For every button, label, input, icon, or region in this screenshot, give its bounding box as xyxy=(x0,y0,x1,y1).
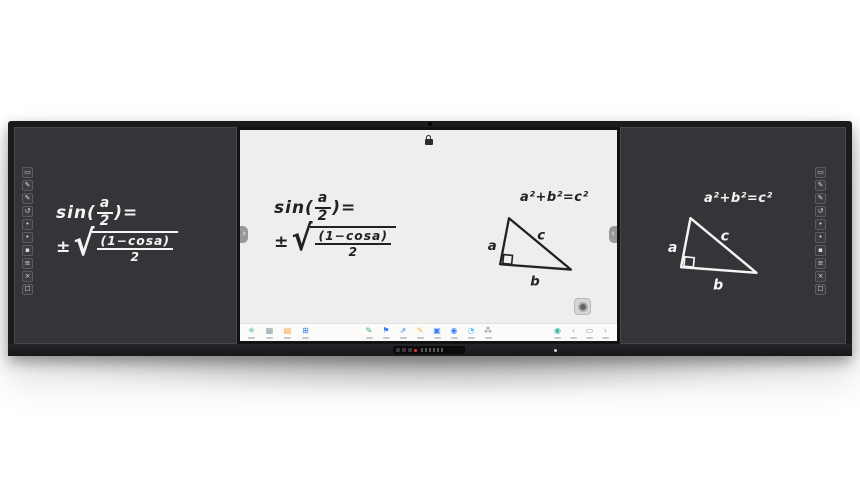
icon-label xyxy=(400,337,407,339)
eraser-puck[interactable] xyxy=(574,298,591,315)
marker-icon[interactable]: ✎ xyxy=(22,193,33,204)
back-glyph: ‹ xyxy=(572,326,575,335)
eraser-icon[interactable]: ▪ xyxy=(815,245,826,256)
eraser-icon[interactable]: ▪ xyxy=(22,245,33,256)
radicand-denominator: 2 xyxy=(348,245,358,258)
right-expand-tab[interactable]: ‹ xyxy=(609,226,617,243)
icon-label xyxy=(284,337,291,339)
left-side-toolbar: ▭ ✎ ✎ ↺ • • ▪ ≡ × ☐ xyxy=(22,167,33,295)
icon-label xyxy=(366,337,373,339)
icon-label xyxy=(383,337,390,339)
power-led xyxy=(414,349,417,352)
radical-sign: √ xyxy=(73,230,95,259)
tools-glyph: ◉ xyxy=(451,326,458,335)
shape-icon[interactable]: • xyxy=(815,219,826,230)
apps-grid-icon[interactable]: ▦ xyxy=(264,326,275,339)
history-icon[interactable]: ↺ xyxy=(815,206,826,217)
fraction-denominator: 2 xyxy=(100,214,111,229)
triangle-label-b: b xyxy=(530,275,540,290)
taskbar-left-group: ✳ ▦ ▤ ⊞ xyxy=(246,326,311,339)
half-angle-formula-chalk: sin(a2)= ± √(1−cosa)2 xyxy=(56,197,178,263)
apps-grid-glyph: ▦ xyxy=(266,326,274,335)
select-icon[interactable]: ☐ xyxy=(22,284,33,295)
icon-label xyxy=(586,337,593,339)
annotate-glyph: ✎ xyxy=(366,326,373,335)
layers-icon[interactable]: ≡ xyxy=(22,258,33,269)
radicand-denominator: 2 xyxy=(130,250,140,263)
courseware-icon[interactable]: ⚑ xyxy=(381,326,392,339)
clear-icon[interactable]: × xyxy=(22,271,33,282)
center-display: › ‹ sin(a2)= ± √(1−cosa)2 a²+b²=c² a xyxy=(240,130,617,341)
taskbar-center-group: ✎ ⚑ ⇗ ✎ ▣ ◉ ◔ ⁂ xyxy=(364,326,494,339)
display-icon[interactable]: ▣ xyxy=(432,326,443,339)
icon-label xyxy=(434,337,441,339)
right-blackboard-panel: a²+b²=c² a c b ▭ ✎ ✎ ↺ • • ▪ ≡ × ☐ xyxy=(620,127,846,344)
panel-button[interactable] xyxy=(408,348,412,352)
history-icon[interactable]: ↺ xyxy=(22,206,33,217)
select-icon[interactable]: ☐ xyxy=(815,284,826,295)
formula-text: )= xyxy=(332,198,356,218)
left-expand-tab[interactable]: › xyxy=(240,226,248,243)
left-blackboard-panel: ▭ ✎ ✎ ↺ • • ▪ ≡ × ☐ sin(a2)= ± √(1−cosa)… xyxy=(14,127,237,344)
plus-minus-sign: ± xyxy=(56,237,71,257)
courseware-glyph: ⚑ xyxy=(382,326,389,335)
icon-label xyxy=(248,337,255,339)
radicand-numerator: (1−cosa) xyxy=(315,230,390,245)
forward-icon[interactable]: › xyxy=(600,326,611,339)
home-icon[interactable]: ▭ xyxy=(584,326,595,339)
panel-button[interactable] xyxy=(402,348,406,352)
triangle-label-a: a xyxy=(488,239,497,254)
icon-label xyxy=(468,337,475,339)
shape-icon[interactable]: • xyxy=(22,219,33,230)
windows-glyph: ⊞ xyxy=(302,326,309,335)
icon-label xyxy=(266,337,273,339)
triangle-label-c: c xyxy=(537,229,545,244)
annotate-icon[interactable]: ✎ xyxy=(364,326,375,339)
highlighter-glyph: ✎ xyxy=(417,326,424,335)
pen-icon[interactable]: ✎ xyxy=(22,180,33,191)
smart-blackboard-device: ▭ ✎ ✎ ↺ • • ▪ ≡ × ☐ sin(a2)= ± √(1−cosa)… xyxy=(8,121,852,356)
mindmap-icon[interactable]: ⁂ xyxy=(483,326,494,339)
icon-label xyxy=(554,337,561,339)
icon-label xyxy=(570,337,577,339)
timer-icon[interactable]: ◔ xyxy=(466,326,477,339)
icon-label xyxy=(451,337,458,339)
icon-label xyxy=(417,337,424,339)
icon-label xyxy=(602,337,609,339)
share-screen-glyph: ⇗ xyxy=(400,326,407,335)
board-icon[interactable]: ▭ xyxy=(22,167,33,178)
board-icon[interactable]: ▭ xyxy=(815,167,826,178)
formula-text: )= xyxy=(114,203,138,223)
share-screen-icon[interactable]: ⇗ xyxy=(398,326,409,339)
display-glyph: ▣ xyxy=(433,326,441,335)
files-icon[interactable]: ▤ xyxy=(282,326,293,339)
right-side-toolbar: ▭ ✎ ✎ ↺ • • ▪ ≡ × ☐ xyxy=(815,167,826,295)
pen-icon[interactable]: ✎ xyxy=(815,180,826,191)
formula-text: sin( xyxy=(56,203,96,223)
half-angle-formula-ink: sin(a2)= ± √(1−cosa)2 xyxy=(274,192,396,258)
floor-shadow xyxy=(24,350,836,396)
record-glyph: ◉ xyxy=(554,326,561,335)
sticker-icon[interactable]: • xyxy=(815,232,826,243)
icon-label xyxy=(485,337,492,339)
forward-glyph: › xyxy=(604,326,607,335)
panel-row: ▭ ✎ ✎ ↺ • • ▪ ≡ × ☐ sin(a2)= ± √(1−cosa)… xyxy=(14,127,846,344)
radical-sign: √ xyxy=(291,225,313,254)
clear-icon[interactable]: × xyxy=(815,271,826,282)
bottom-bezel xyxy=(8,344,852,356)
icon-label xyxy=(302,337,309,339)
settings-glyph: ✳ xyxy=(248,326,255,335)
sticker-icon[interactable]: • xyxy=(22,232,33,243)
panel-button[interactable] xyxy=(396,348,400,352)
fraction-denominator: 2 xyxy=(318,209,329,224)
display-taskbar: ✳ ▦ ▤ ⊞ ✎ ⚑ ⇗ ✎ ▣ ◉ ◔ ⁂ xyxy=(240,323,617,341)
camera-icon xyxy=(428,122,432,126)
windows-icon[interactable]: ⊞ xyxy=(300,326,311,339)
pythagorean-formula-ink: a²+b²=c² xyxy=(520,190,589,205)
settings-icon[interactable]: ✳ xyxy=(246,326,257,339)
back-icon[interactable]: ‹ xyxy=(568,326,579,339)
pythagorean-formula-chalk: a²+b²=c² xyxy=(704,191,773,206)
marker-icon[interactable]: ✎ xyxy=(815,193,826,204)
right-triangle-chalk: a c b xyxy=(666,209,764,297)
home-glyph: ▭ xyxy=(586,326,594,335)
triangle-label-c: c xyxy=(721,229,730,245)
tools-icon[interactable]: ◉ xyxy=(449,326,460,339)
triangle-label-a: a xyxy=(668,240,678,256)
plus-minus-sign: ± xyxy=(274,232,289,252)
highlighter-icon[interactable]: ✎ xyxy=(415,326,426,339)
sensor-dot xyxy=(554,349,557,352)
lock-icon xyxy=(425,135,433,145)
port-row xyxy=(421,348,445,352)
taskbar-right-group: ◉ ‹ ▭ › xyxy=(552,326,611,339)
radicand-numerator: (1−cosa) xyxy=(97,235,172,250)
fraction-numerator: a xyxy=(97,197,113,214)
record-icon[interactable]: ◉ xyxy=(552,326,563,339)
center-display-bezel: › ‹ sin(a2)= ± √(1−cosa)2 a²+b²=c² a xyxy=(237,127,620,344)
control-panel xyxy=(393,346,465,354)
timer-glyph: ◔ xyxy=(468,326,475,335)
mindmap-glyph: ⁂ xyxy=(484,326,492,335)
formula-text: sin( xyxy=(274,198,314,218)
layers-icon[interactable]: ≡ xyxy=(815,258,826,269)
files-glyph: ▤ xyxy=(284,326,292,335)
fraction-numerator: a xyxy=(315,192,331,209)
right-triangle-ink: a c b xyxy=(486,208,578,294)
triangle-label-b: b xyxy=(713,278,723,294)
